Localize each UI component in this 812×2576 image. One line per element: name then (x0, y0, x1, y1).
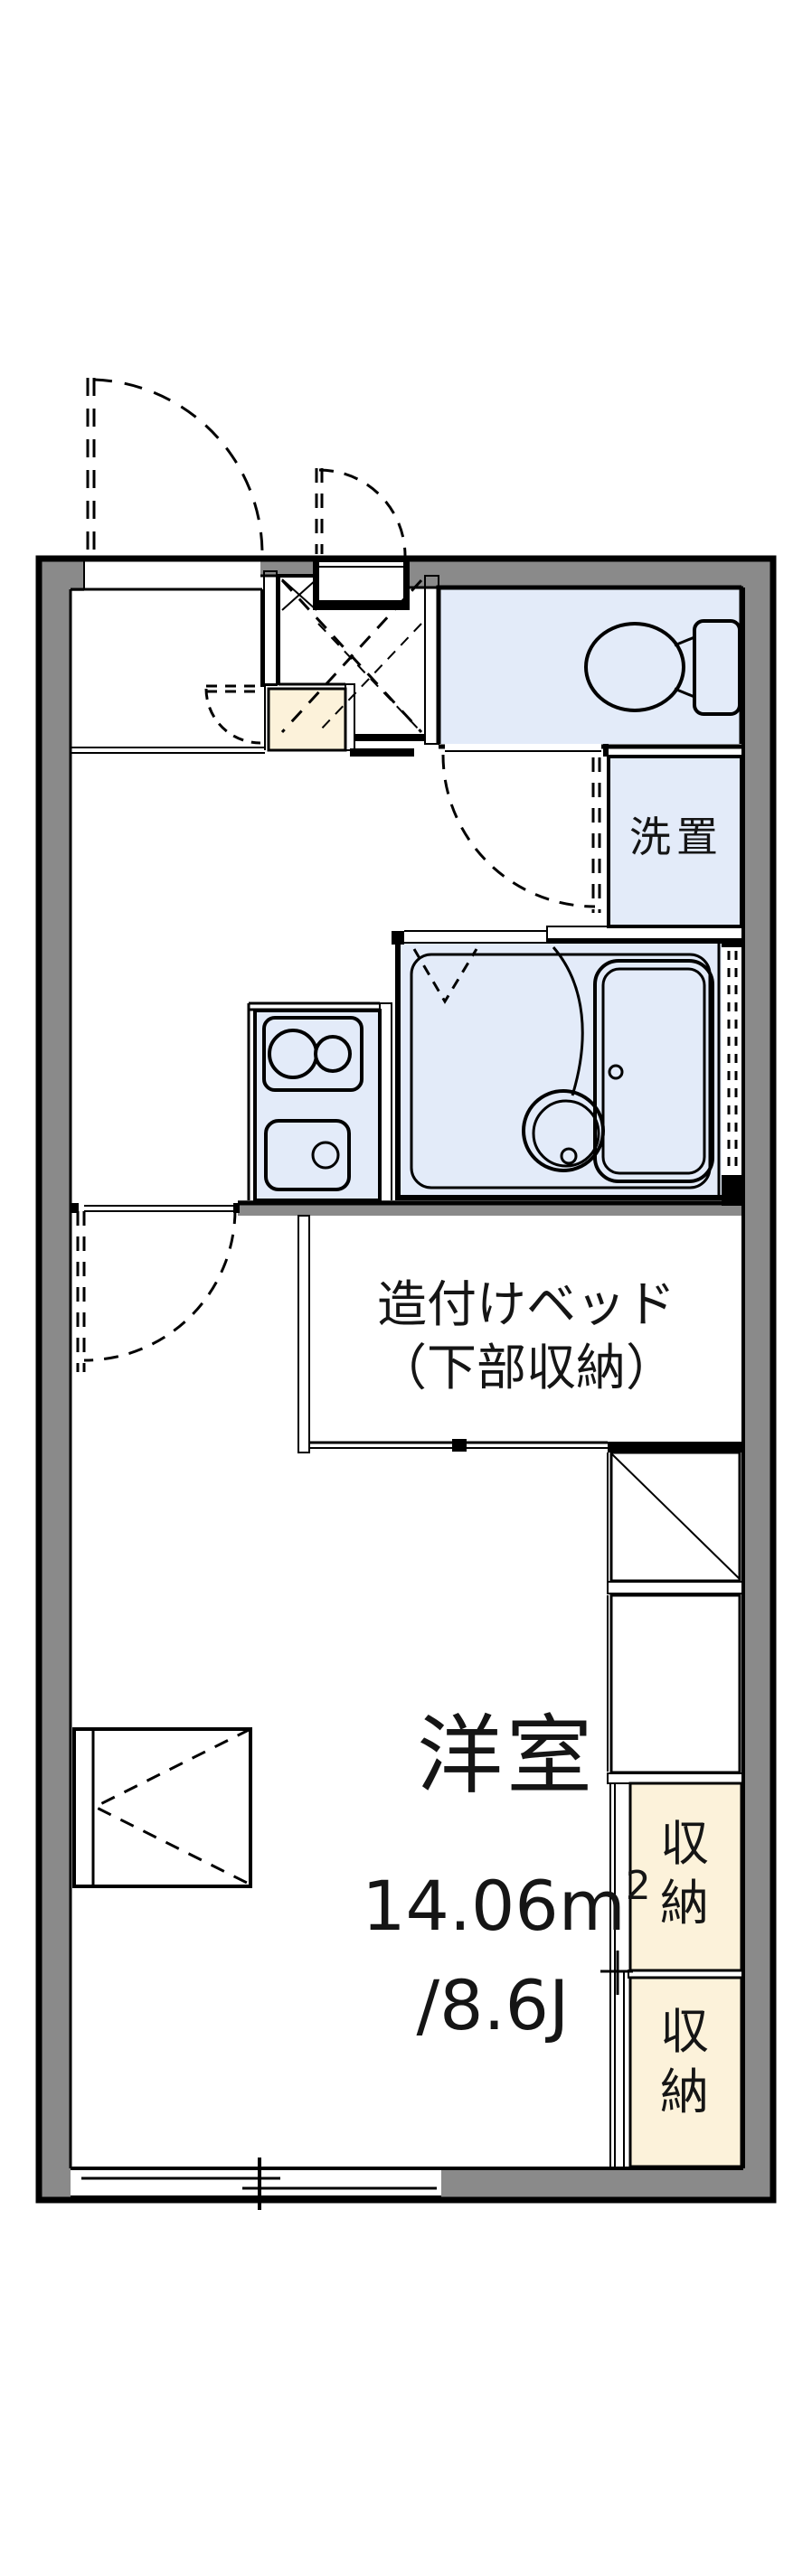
entry-door-leaf (316, 468, 322, 554)
bath-side-dashed-strip (729, 951, 736, 1173)
bedroom-door-leaf (78, 1211, 84, 1372)
bathroom (395, 942, 722, 1199)
hall-door-leaf (206, 686, 260, 691)
toilet-tank (694, 621, 740, 714)
wall-right (743, 559, 773, 2199)
wall-closet-band2 (608, 1773, 743, 1783)
living-tatami-text: /8.6J (417, 1965, 570, 2045)
toilet-door-leaf (593, 757, 600, 913)
wall-top-left-corner (40, 559, 84, 591)
floor-plan-svg: 洗置 造付けベッド （下部収納） 洋室 14.06m2 /8.6J 収 納 収 … (0, 0, 812, 2576)
wall-genkan-left-strip (264, 571, 277, 685)
genkan-outline (277, 576, 313, 684)
bedroom-door-arc (84, 1209, 235, 1360)
entry-door-arc (319, 470, 405, 556)
hall-door-arc (206, 689, 260, 743)
living-area-text: 14.06m2 (362, 1863, 651, 1946)
balcony-door-leaf (88, 378, 94, 554)
storage-top-char2: 納 (660, 1875, 709, 1932)
wall-bedroom-left (298, 1216, 309, 1453)
entrance-tataki (269, 689, 345, 750)
bed-front-post (452, 1439, 467, 1452)
bed-bottom-wall (608, 1442, 743, 1453)
fold-table-dashes (95, 1729, 250, 1885)
closet-b-outline (611, 1595, 740, 1772)
living-area-sup: 2 (626, 1863, 651, 1909)
wall-bottom-band (441, 2168, 743, 2199)
toilet-door-arc (443, 755, 595, 907)
bath-right-top-block (722, 938, 743, 947)
storage-top-char1: 収 (660, 1815, 709, 1872)
wall-closet-band1 (608, 1582, 743, 1594)
storage-bottom-char1: 収 (660, 2003, 709, 2060)
window-frame-lines (71, 2168, 441, 2197)
left-room-bottom-double (71, 747, 265, 753)
fold-table (74, 1729, 250, 1886)
bedroom-door-threshold (84, 1206, 233, 1211)
room-label-living: 洋室 (417, 1706, 596, 1806)
room-label-bed-line1: 造付けベッド (377, 1275, 675, 1333)
closet-a-diagonal (608, 1453, 740, 1582)
room-label-laundry: 洗置 (629, 813, 723, 861)
genkan-bottom-edge (354, 734, 425, 741)
sink-drain (313, 1142, 338, 1168)
wall-top-right-band (404, 559, 743, 588)
stove-burner-right (316, 1037, 350, 1071)
floor-plan-page: 洗置 造付けベッド （下部収納） 洋室 14.06m2 /8.6J 収 納 収 … (0, 0, 812, 2576)
storage-bottom-char2: 納 (660, 2064, 709, 2120)
stove-burner-left (269, 1030, 316, 1077)
toilet-bowl (586, 624, 684, 710)
wall-left (40, 559, 71, 2199)
room-label-bed-line2: （下部収納） (377, 1339, 675, 1396)
balcony-door-arc (94, 380, 262, 554)
living-area-base: 14.06m (362, 1866, 626, 1946)
bathroom-door-threshold (404, 931, 547, 943)
hall-top-bar (350, 748, 414, 757)
storage-track-tick (600, 1951, 633, 1995)
